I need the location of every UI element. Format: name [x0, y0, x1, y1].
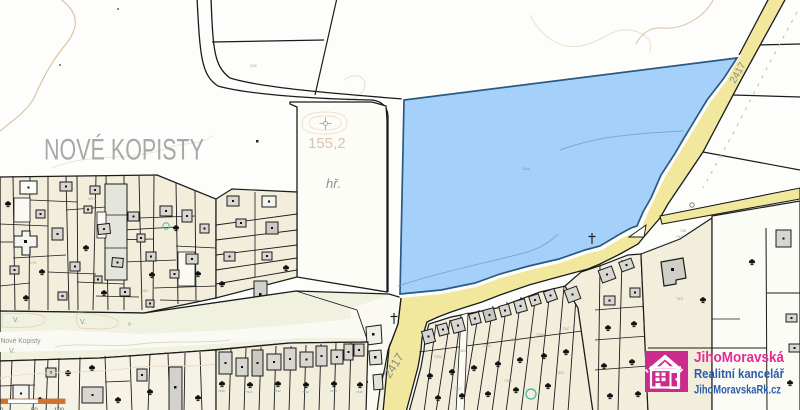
- svg-text:7312: 7312: [274, 389, 281, 393]
- svg-text:7307: 7307: [562, 327, 570, 331]
- svg-text:7314: 7314: [330, 389, 337, 393]
- svg-text:NOVÉ KOPISTY: NOVÉ KOPISTY: [44, 134, 204, 167]
- svg-text:205: 205: [250, 63, 257, 68]
- svg-text:7303: 7303: [458, 349, 466, 353]
- svg-text:JihoMoravská: JihoMoravská: [694, 350, 785, 366]
- svg-text:175: 175: [30, 261, 36, 265]
- svg-text:7310: 7310: [218, 389, 225, 393]
- svg-text:hř.: hř.: [326, 176, 341, 191]
- svg-text:7315: 7315: [356, 390, 363, 394]
- svg-text:4982: 4982: [140, 289, 148, 293]
- svg-text:7302: 7302: [434, 355, 442, 359]
- svg-text:745: 745: [676, 296, 683, 301]
- svg-text:4976: 4976: [88, 197, 96, 201]
- svg-text:V.: V.: [9, 348, 15, 355]
- svg-text:7318: 7318: [504, 379, 512, 383]
- svg-text:7313: 7313: [302, 390, 309, 394]
- svg-text:7319: 7319: [556, 371, 564, 375]
- svg-text:7305: 7305: [510, 338, 518, 342]
- svg-text:7306: 7306: [536, 333, 544, 337]
- svg-text:7304: 7304: [483, 344, 491, 348]
- svg-text:V.: V.: [13, 317, 19, 324]
- svg-text:155,2: 155,2: [308, 135, 346, 152]
- svg-text:v: v: [128, 322, 131, 328]
- svg-text:748: 748: [680, 229, 686, 233]
- svg-text:V.: V.: [80, 319, 86, 326]
- svg-text:748: 748: [676, 234, 683, 239]
- svg-text:JihoMoravskaRk.cz: JihoMoravskaRk.cz: [694, 385, 781, 397]
- svg-text:244: 244: [523, 166, 530, 171]
- svg-text:7311: 7311: [246, 390, 253, 394]
- svg-text:Nové Kopisty: Nové Kopisty: [1, 338, 41, 345]
- svg-text:Realitní kancelář: Realitní kancelář: [694, 366, 785, 381]
- svg-text:7317: 7317: [454, 387, 462, 391]
